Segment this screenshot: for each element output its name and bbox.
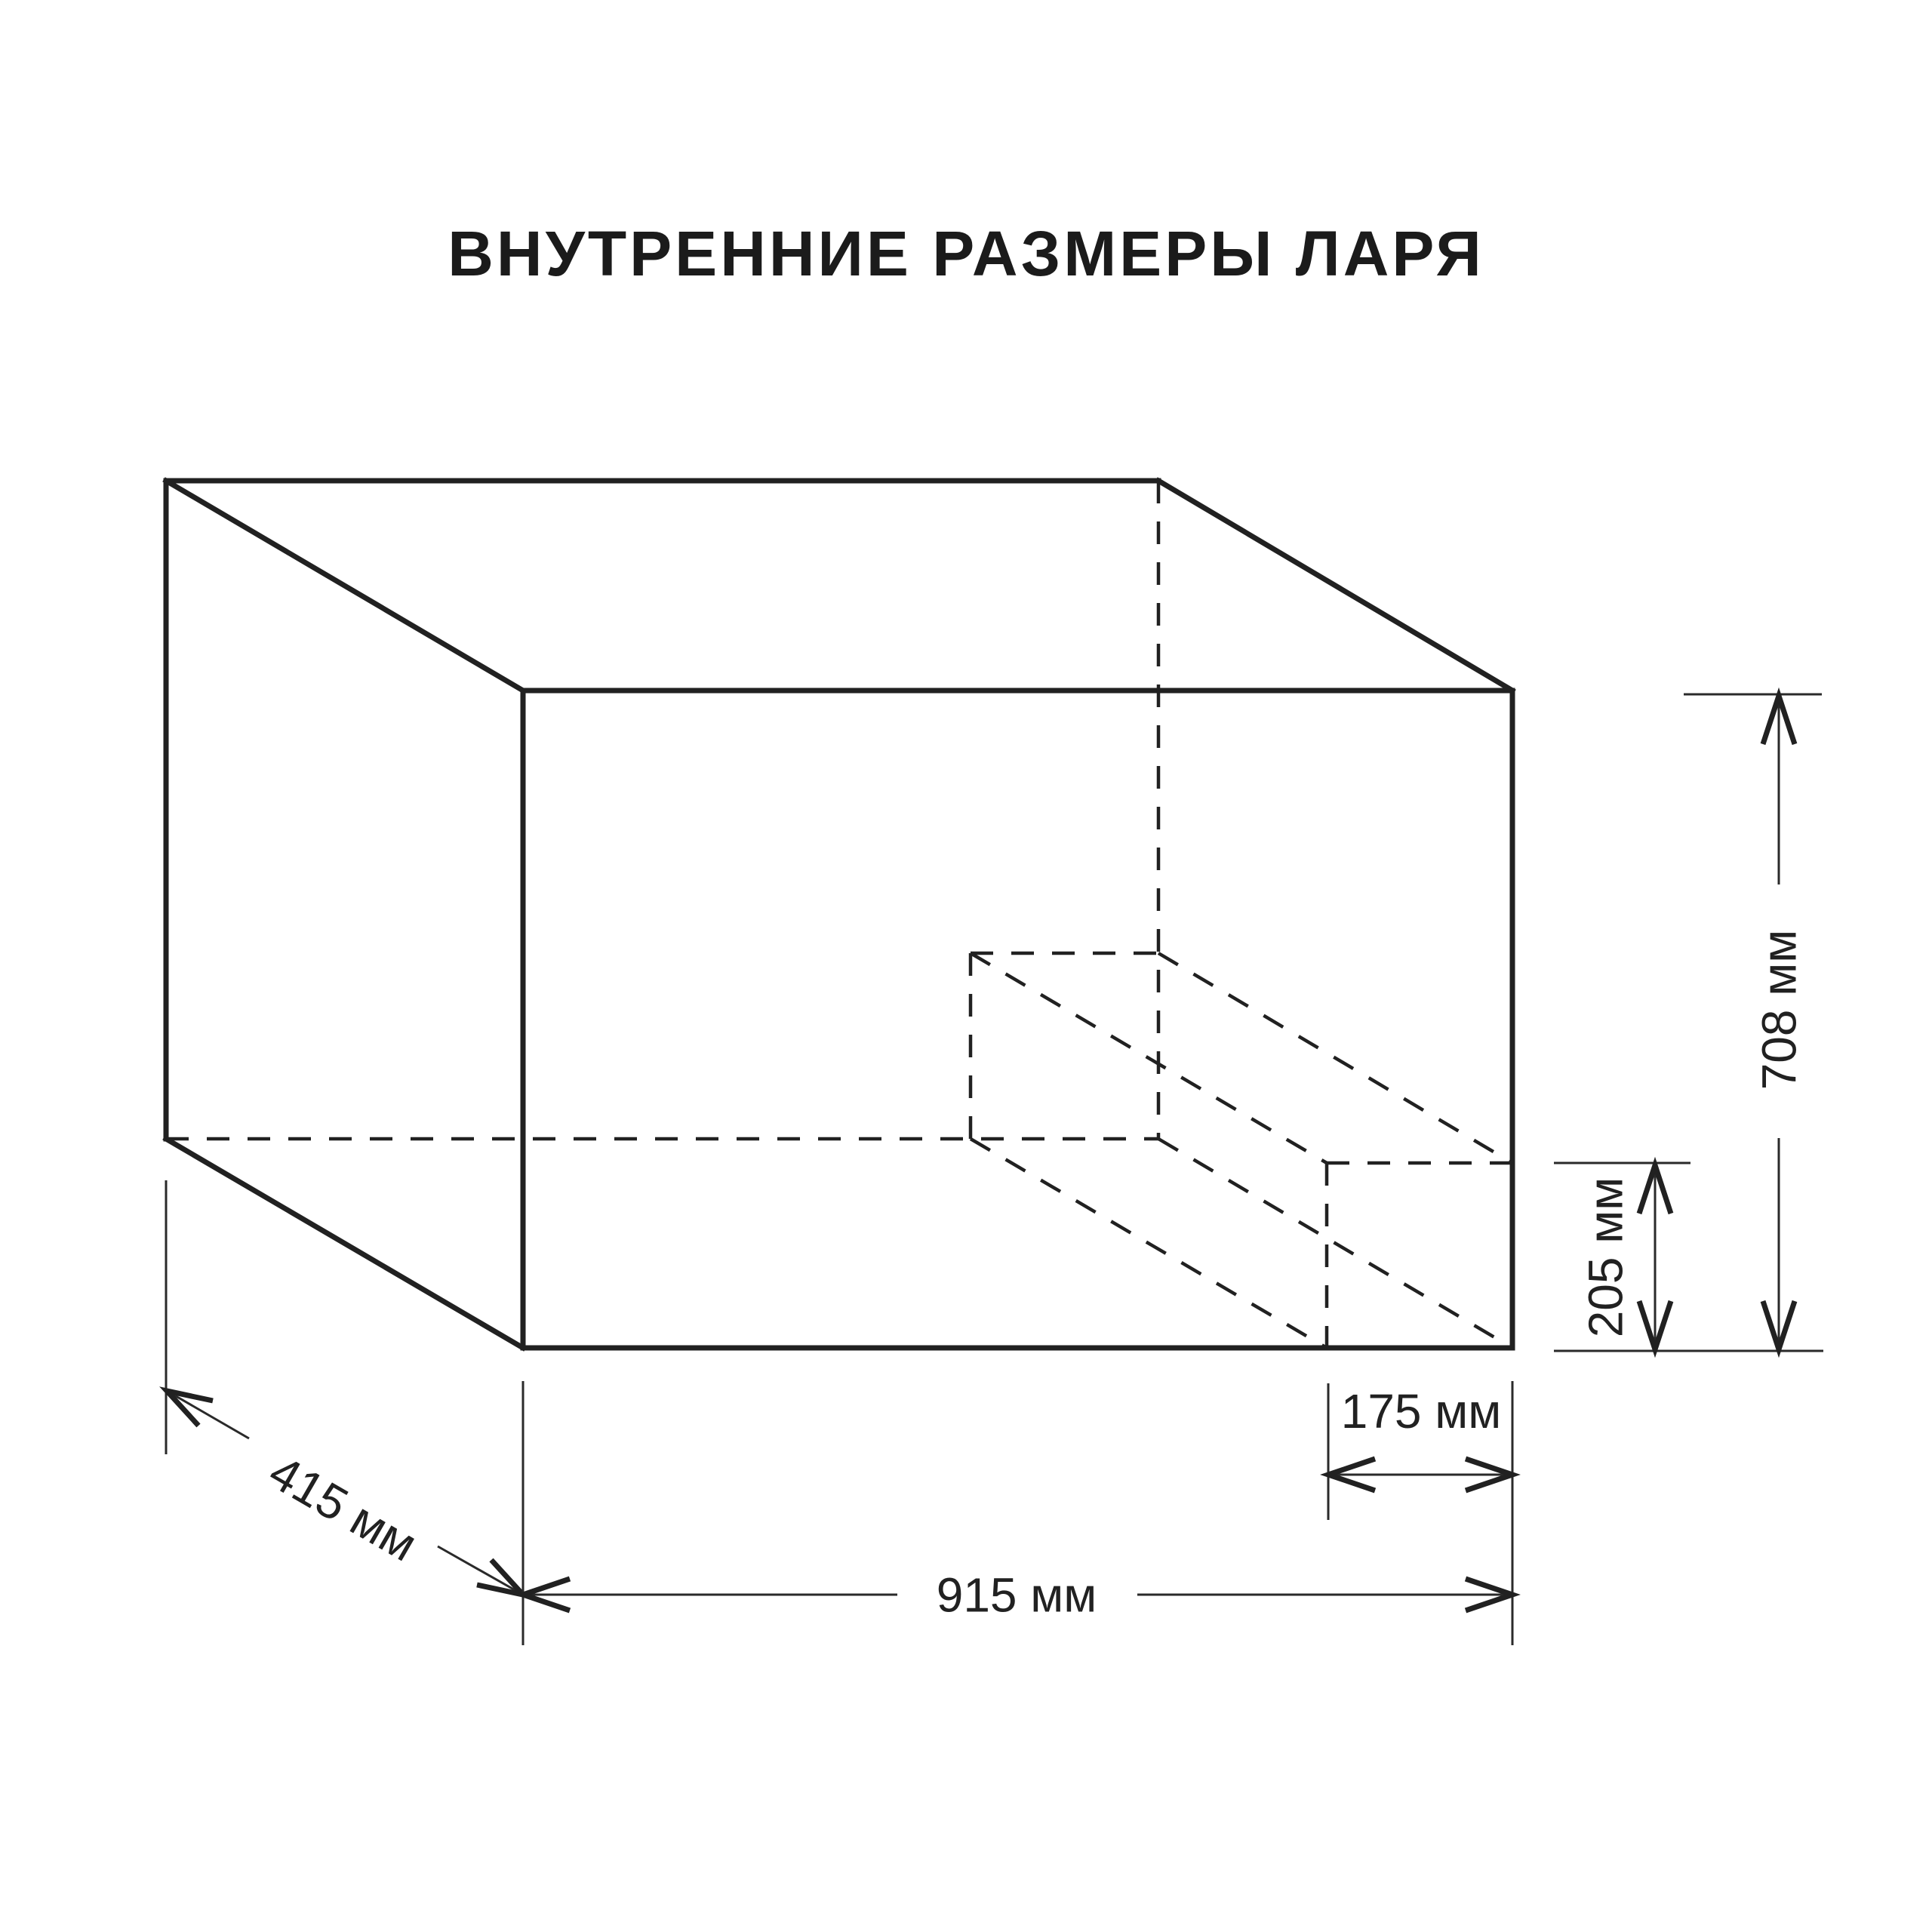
dimension-step-height: 205 мм [1554,1163,1823,1351]
box-solid-edges [166,481,1512,1348]
dimension-step-height-label: 205 мм [1578,1177,1632,1338]
right-bottom-depth-edge [1158,1139,1512,1348]
dimension-width-label: 915 мм [937,1567,1097,1622]
step-top-left-depth-edge [971,953,1327,1163]
dimension-depth-label: 415 мм [260,1444,426,1572]
compressor-step-hidden-edges [971,953,1512,1348]
right-top-depth-edge [1158,481,1512,691]
dimension-step-width-label: 175 мм [1341,1384,1502,1438]
arrowhead-upper-left [167,1391,213,1426]
page: ВНУТРЕННИЕ РАЗМЕРЫ ЛАРЯ [0,0,1932,1932]
left-top-depth-edge [166,481,523,691]
step-bottom-left-depth-edge [971,1139,1327,1348]
dimension-height: 708 мм [1684,694,1822,1349]
freezer-wireframe-diagram: 415 мм 915 мм 175 мм 205 мм [0,0,1932,1932]
step-top-right-depth-edge [1158,953,1512,1163]
left-bottom-depth-edge [166,1139,523,1348]
arrowhead-lower-right [477,1560,523,1595]
dimension-height-label: 708 мм [1752,930,1806,1091]
box-hidden-edges [166,481,1512,1348]
dimension-step-width: 175 мм [1328,1383,1512,1520]
